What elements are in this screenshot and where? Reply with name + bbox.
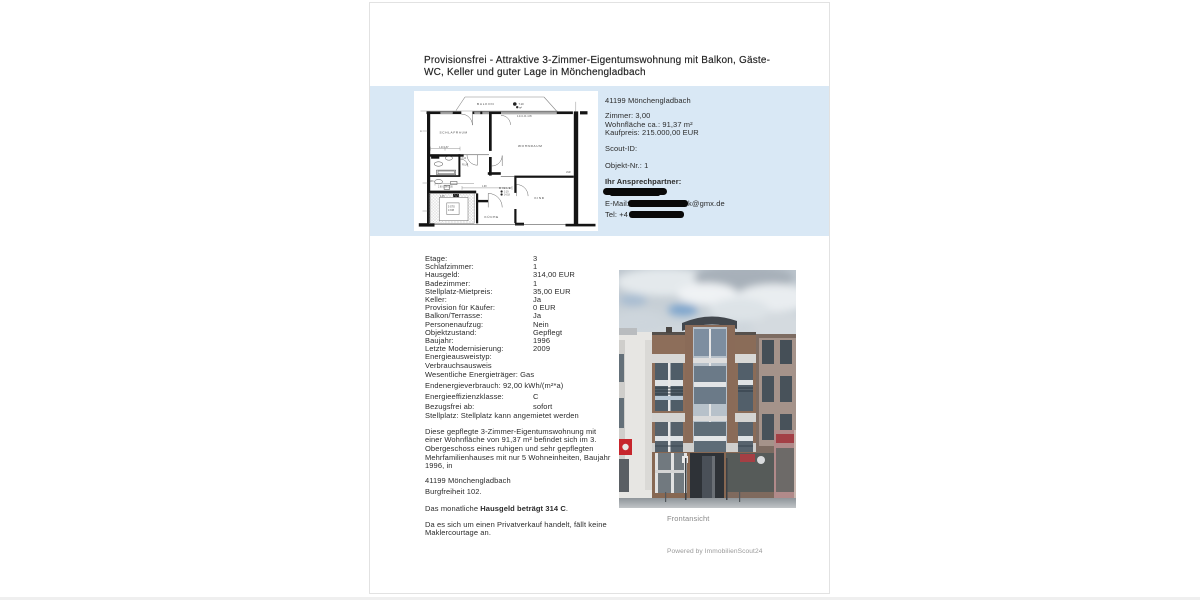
svg-text:m²: m² [519,106,522,109]
svg-text:1.98: 1.98 [482,186,487,188]
svg-text:14.18: 14.18 [504,194,510,196]
svg-text:m: m [420,131,422,133]
svg-text:WC: WC [430,181,434,183]
svg-text:DIELE: DIELE [499,186,511,190]
svg-text:KÜCHE: KÜCHE [485,215,499,219]
svg-text:2.80 1.98 1.05: 2.80 1.98 1.05 [438,187,453,189]
svg-text:BALKON: BALKON [477,102,494,106]
svg-text:LNR: LNR [566,172,571,174]
svg-text:WOHNRAUM: WOHNRAUM [518,144,543,148]
svg-text:3.19: 3.19 [504,191,509,193]
svg-text:FLUR: FLUR [462,165,468,167]
svg-text:7.10: 7.10 [519,102,525,106]
svg-text:4.05: 4.05 [440,196,445,198]
svg-text:17/28: 17/28 [448,209,455,212]
svg-text:KIND: KIND [535,196,545,200]
svg-text:SCHLAFRAUM: SCHLAFRAUM [440,131,468,135]
svg-text:1.40 1.87: 1.40 1.87 [439,147,449,149]
svg-text:2.10: 2.10 [462,158,467,160]
svg-text:4.44 1.01 4.05: 4.44 1.01 4.05 [517,116,532,118]
